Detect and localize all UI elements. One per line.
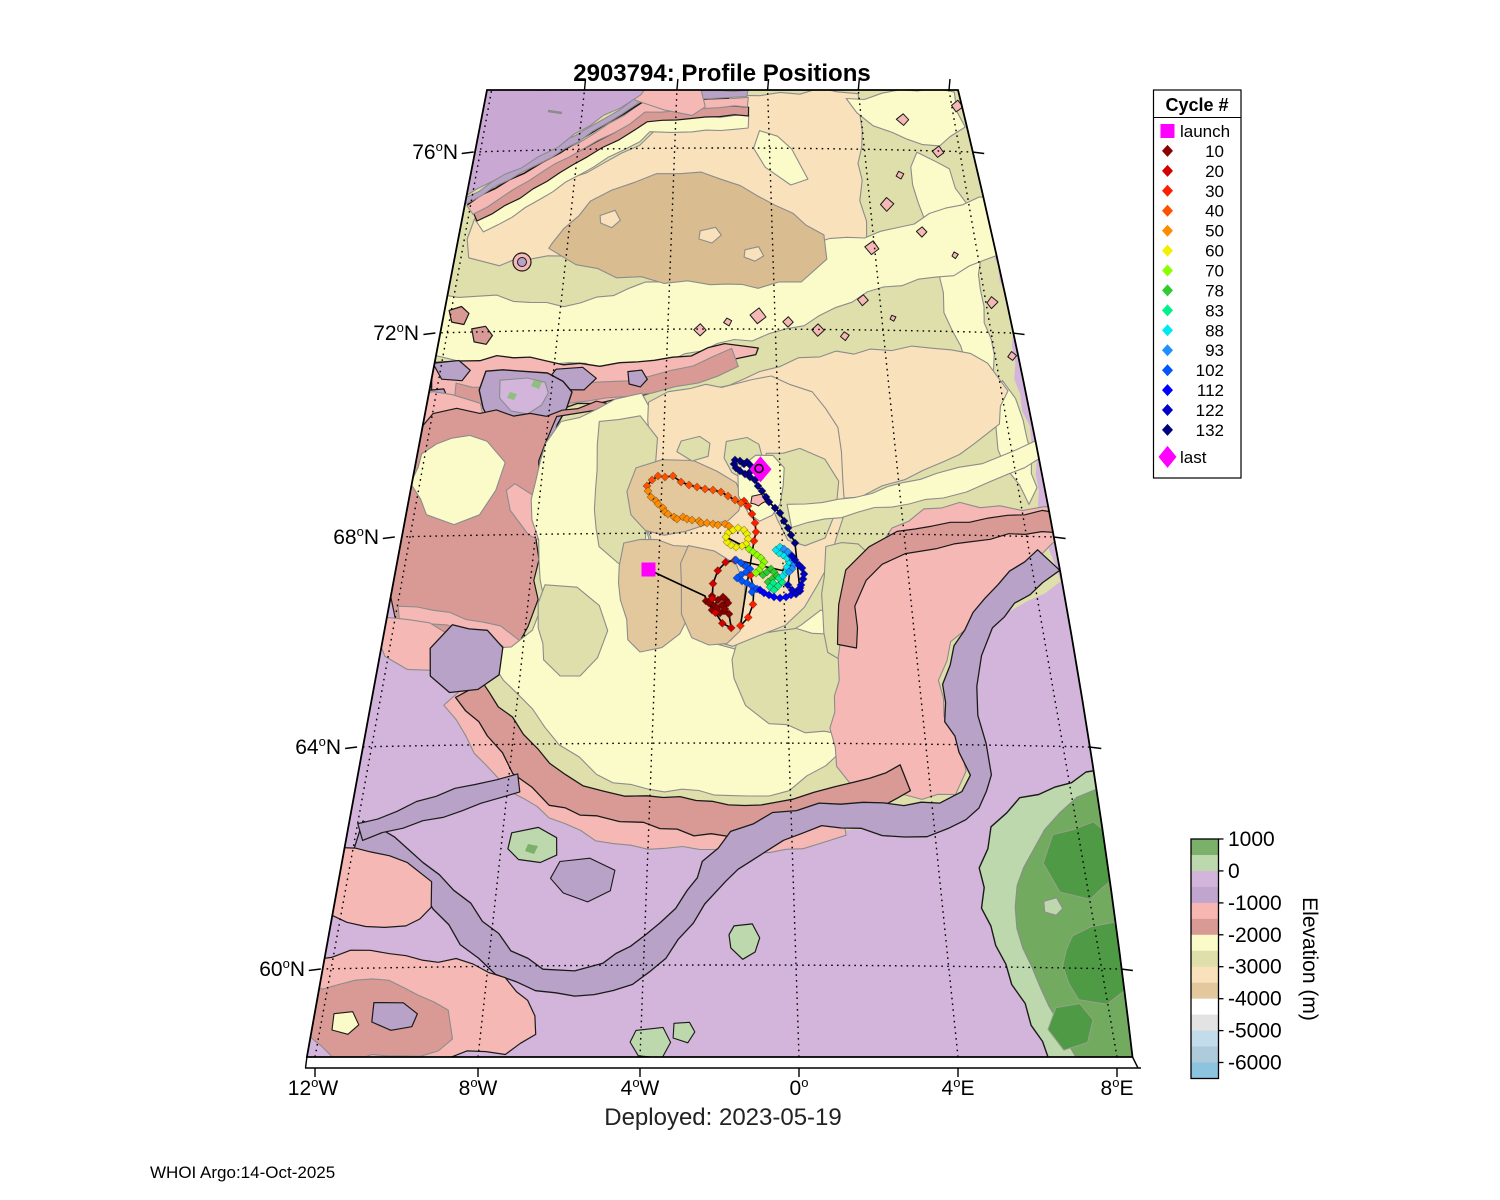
svg-text:-1000: -1000 bbox=[1228, 892, 1282, 915]
svg-text:-4000: -4000 bbox=[1228, 988, 1282, 1011]
svg-text:-2000: -2000 bbox=[1228, 924, 1282, 947]
svg-text:0: 0 bbox=[1228, 860, 1240, 883]
svg-text:Elevation (m): Elevation (m) bbox=[1298, 897, 1321, 1021]
svg-text:88: 88 bbox=[1205, 321, 1224, 340]
svg-text:WHOI Argo:14-Oct-2025: WHOI Argo:14-Oct-2025 bbox=[150, 1163, 335, 1182]
svg-text:112: 112 bbox=[1197, 381, 1224, 400]
svg-text:-5000: -5000 bbox=[1228, 1020, 1282, 1043]
svg-text:40: 40 bbox=[1205, 202, 1224, 221]
svg-text:64oN: 64oN bbox=[295, 734, 341, 759]
svg-text:132: 132 bbox=[1196, 421, 1224, 440]
svg-text:70: 70 bbox=[1205, 262, 1224, 281]
svg-text:83: 83 bbox=[1205, 301, 1224, 320]
svg-text:122: 122 bbox=[1196, 401, 1224, 420]
svg-text:72oN: 72oN bbox=[373, 320, 419, 345]
svg-text:60oN: 60oN bbox=[259, 956, 305, 981]
svg-text:68oN: 68oN bbox=[333, 524, 379, 549]
svg-text:1000: 1000 bbox=[1228, 828, 1275, 851]
svg-text:-6000: -6000 bbox=[1228, 1052, 1282, 1075]
svg-text:last: last bbox=[1180, 448, 1207, 467]
svg-text:50: 50 bbox=[1205, 222, 1224, 241]
svg-text:4oW: 4oW bbox=[621, 1075, 660, 1100]
svg-text:-3000: -3000 bbox=[1228, 956, 1282, 979]
svg-text:93: 93 bbox=[1205, 341, 1224, 360]
svg-text:102: 102 bbox=[1196, 361, 1224, 380]
svg-text:2903794: Profile Positions: 2903794: Profile Positions bbox=[573, 60, 870, 87]
svg-text:76oN: 76oN bbox=[412, 139, 458, 164]
svg-text:30: 30 bbox=[1205, 182, 1224, 201]
svg-text:78: 78 bbox=[1205, 281, 1224, 300]
svg-text:60: 60 bbox=[1205, 242, 1224, 261]
svg-text:Cycle #: Cycle # bbox=[1165, 95, 1228, 115]
svg-text:8oW: 8oW bbox=[459, 1075, 498, 1100]
svg-text:launch: launch bbox=[1180, 122, 1230, 141]
svg-text:10: 10 bbox=[1205, 142, 1224, 161]
svg-text:Deployed: 2023-05-19: Deployed: 2023-05-19 bbox=[604, 1104, 842, 1131]
svg-text:20: 20 bbox=[1205, 162, 1224, 181]
